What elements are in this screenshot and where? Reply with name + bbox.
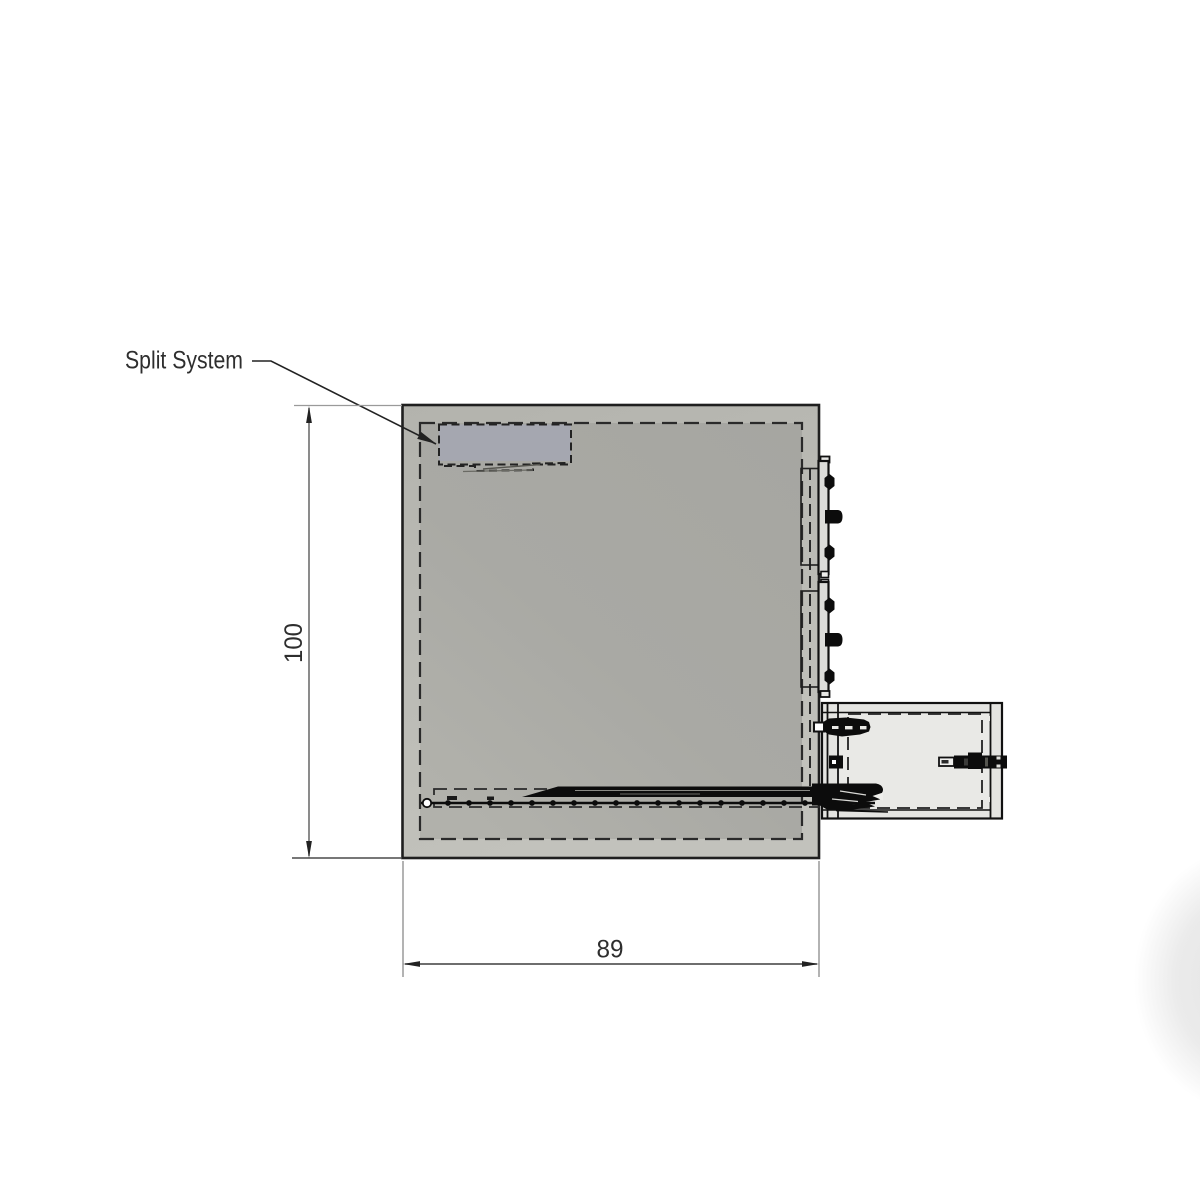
svg-text:Split System: Split System [125, 347, 243, 375]
svg-text:100: 100 [280, 623, 308, 663]
svg-text:89: 89 [597, 936, 624, 964]
